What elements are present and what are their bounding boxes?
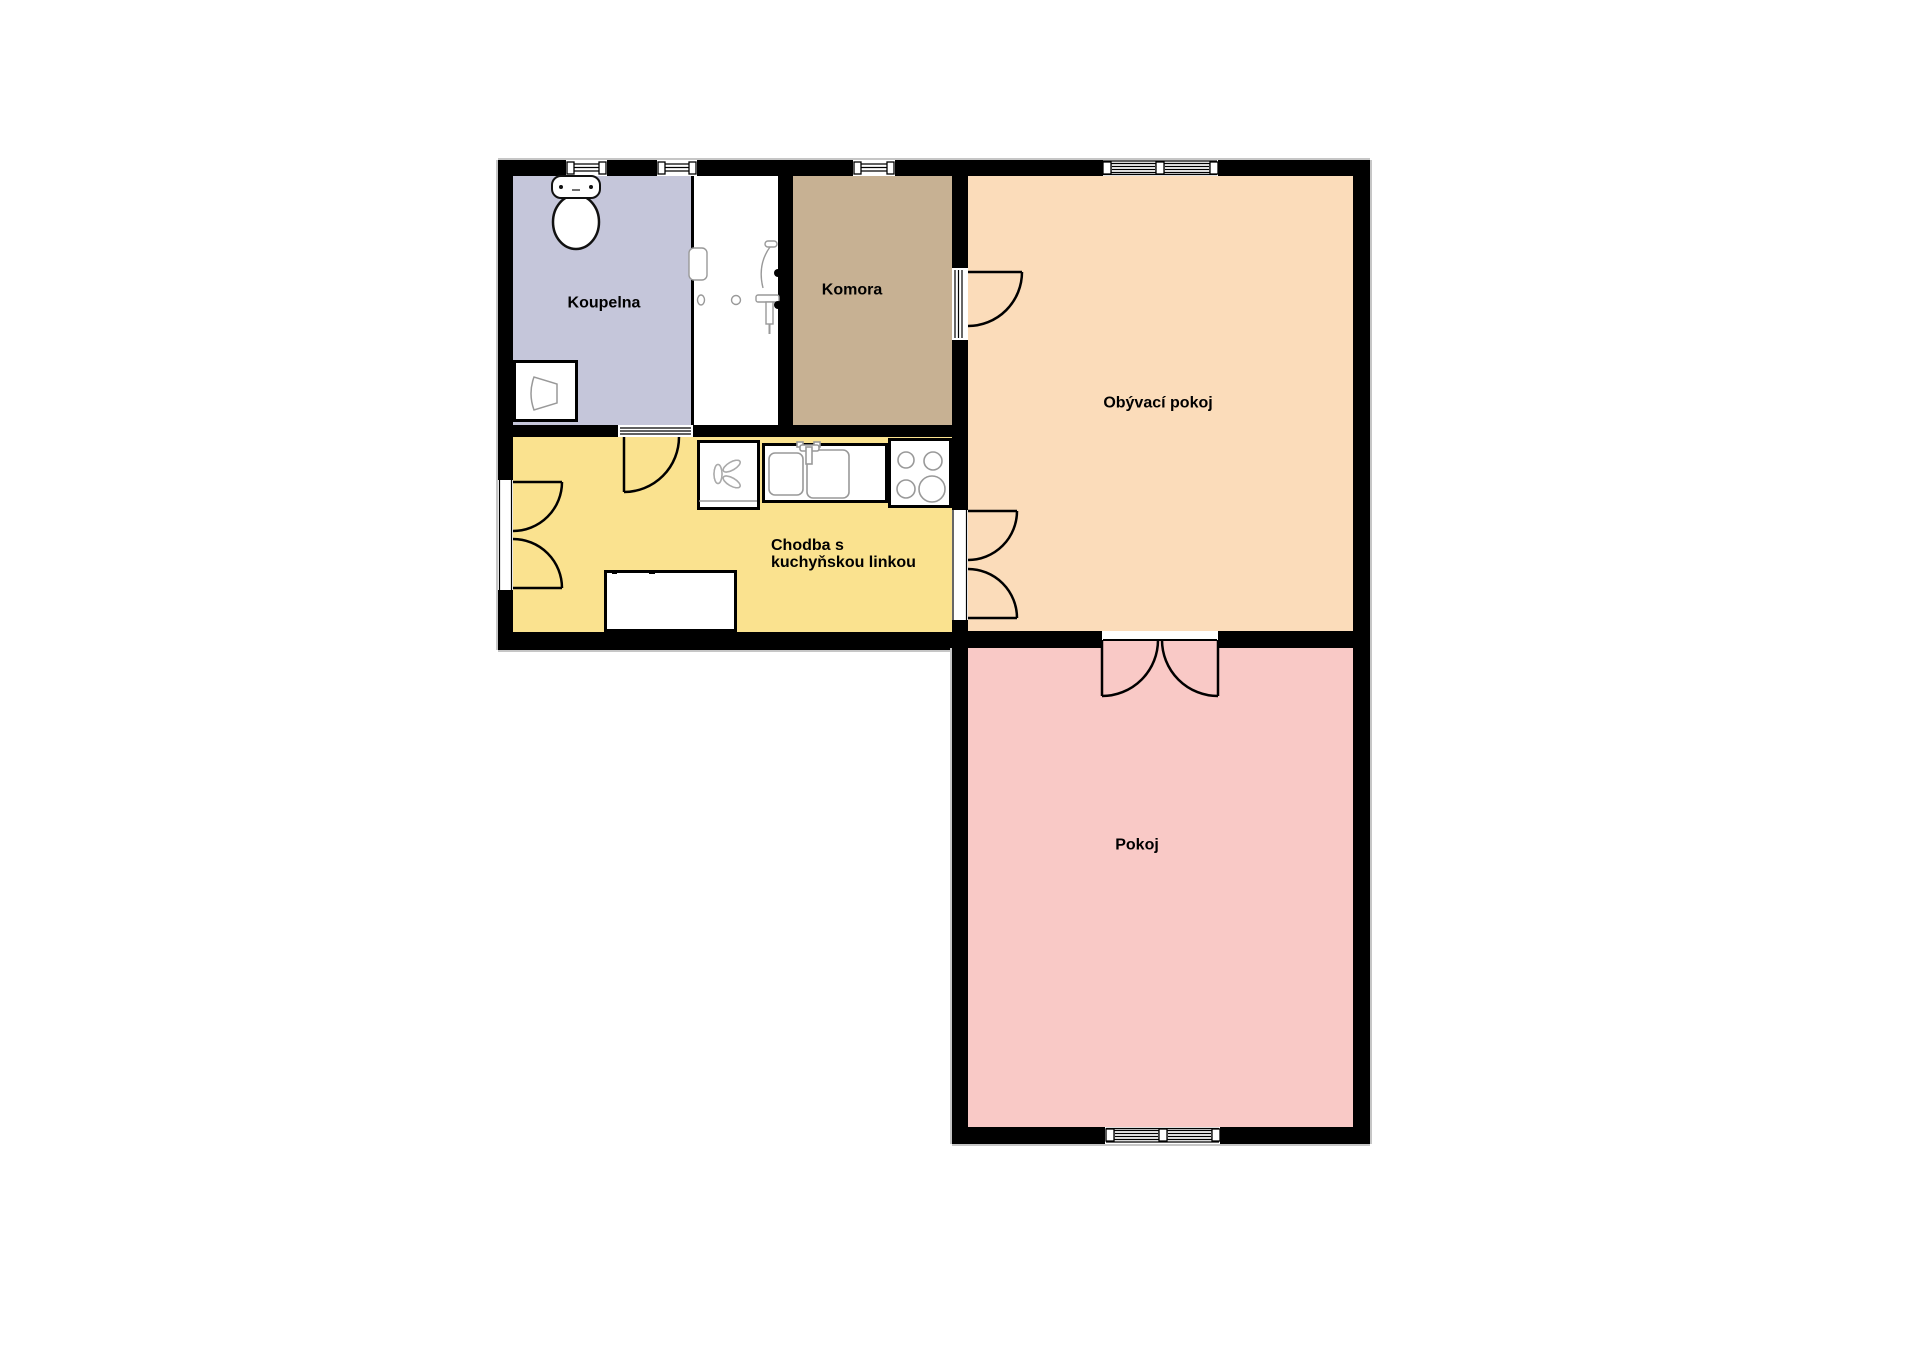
wall [1218, 631, 1370, 648]
water-heater-icon [697, 440, 760, 510]
room-label-obyvaci-pokoj: Obývací pokoj [1103, 395, 1212, 412]
stove-icon [888, 438, 952, 508]
wall [952, 1127, 1105, 1144]
door-opening-balcony [498, 480, 513, 590]
table-icon [604, 570, 737, 632]
floorplan-canvas: Koupelna Komora Obývací pokoj Chodba s k… [0, 0, 1920, 1358]
wall [693, 425, 968, 437]
room-label-komora: Komora [822, 282, 882, 299]
wall [1220, 1127, 1370, 1144]
wall [952, 176, 968, 268]
room-label-chodba-line2: kuchyňskou linkou [771, 554, 916, 571]
wall [607, 160, 657, 176]
door-opening-obyvaci-pokoj [952, 510, 968, 620]
wall [697, 160, 853, 176]
wall [1353, 160, 1370, 1144]
room-label-chodba-line1: Chodba s [771, 537, 916, 554]
wall [952, 648, 968, 1144]
room-label-koupelna: Koupelna [568, 295, 641, 312]
window [853, 160, 895, 176]
window [1105, 1127, 1220, 1144]
wall [895, 160, 1103, 176]
room-label-chodba: Chodba s kuchyňskou linkou [771, 537, 916, 571]
wall [952, 340, 968, 510]
wall [952, 631, 1102, 648]
door-opening-komora [952, 268, 968, 340]
pokoj-door-floor-patch [1102, 640, 1218, 648]
room-komora-floor [793, 176, 952, 425]
room-pokoj-floor [968, 648, 1353, 1127]
wall [498, 632, 968, 650]
window [1103, 160, 1218, 176]
wall [1218, 160, 1370, 176]
window [657, 160, 697, 176]
window [566, 160, 607, 176]
wall [778, 176, 793, 437]
washing-machine-icon [513, 360, 578, 422]
kitchen-sink-icon [762, 443, 888, 503]
door-opening-pokoj [1102, 631, 1218, 640]
room-label-pokoj: Pokoj [1115, 837, 1159, 854]
bathtub-strip [691, 176, 778, 425]
wall [498, 425, 618, 437]
door-opening-koupelna [618, 425, 693, 437]
